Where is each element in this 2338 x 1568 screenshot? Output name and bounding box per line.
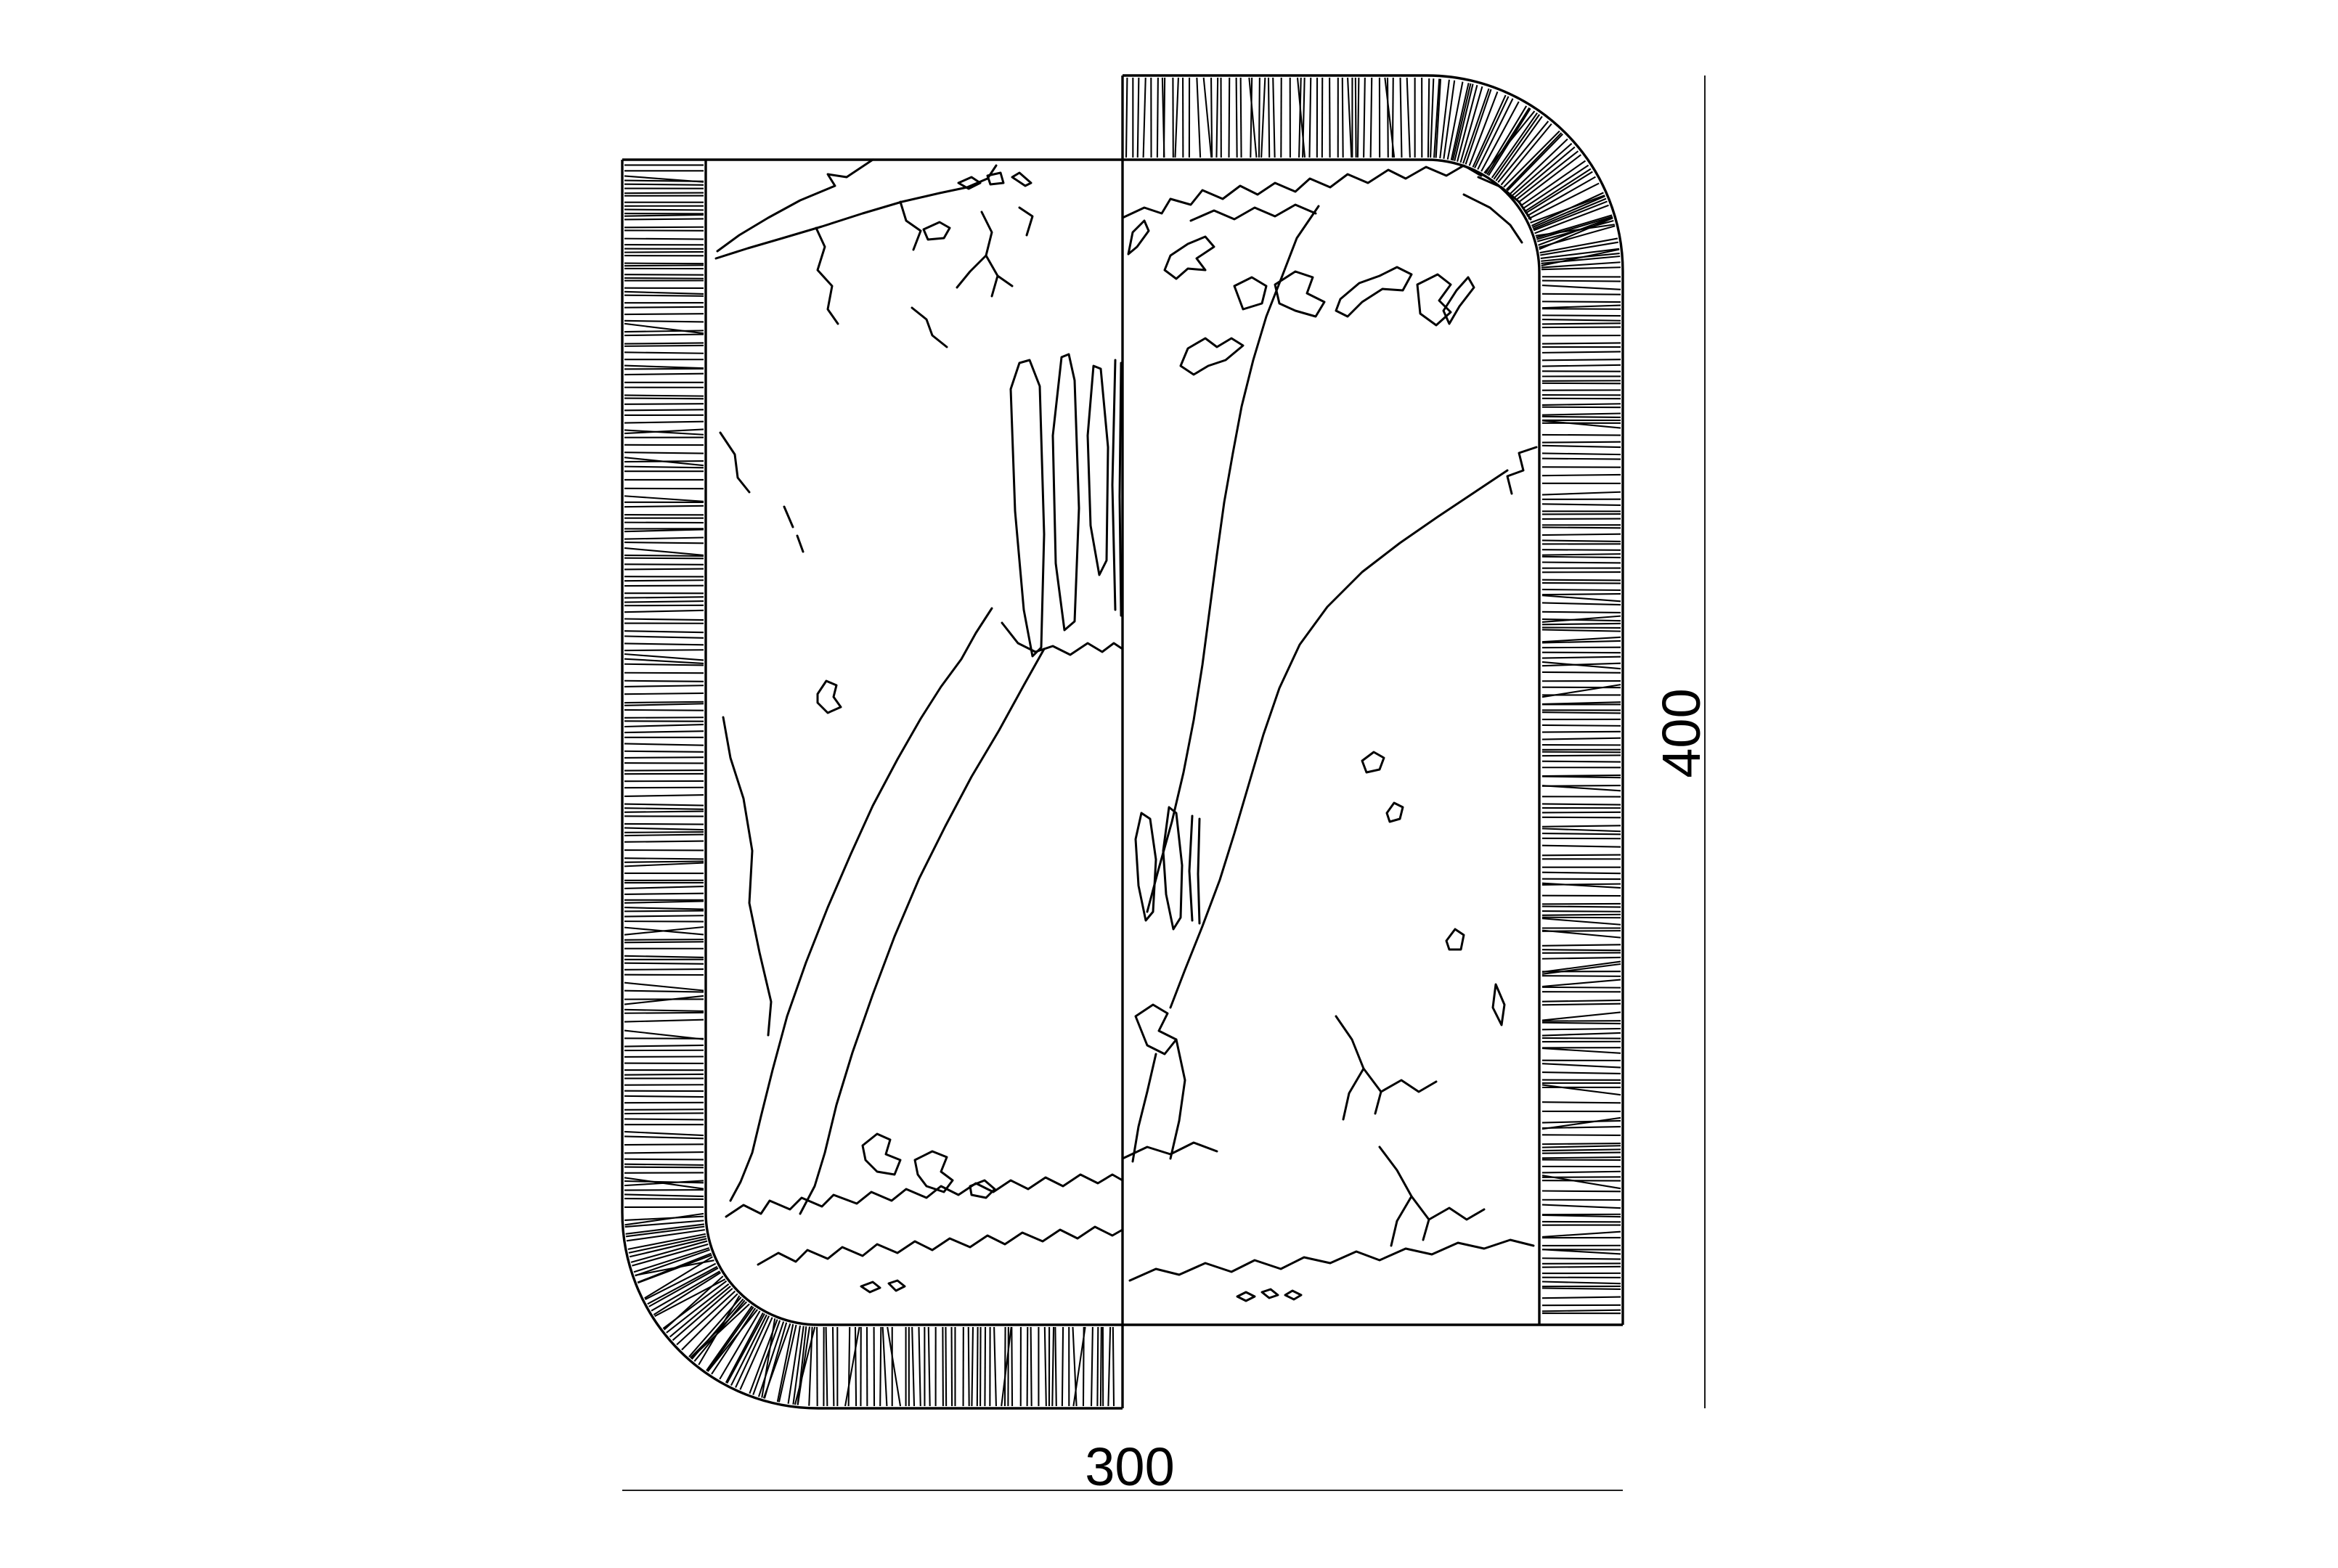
fringe-hatch-line	[1542, 453, 1621, 454]
fringe-hatch-line	[1542, 672, 1621, 673]
fringe-hatch-line	[1542, 442, 1621, 443]
trunk-vein	[800, 649, 1044, 1214]
fringe-hatch-line	[1542, 1121, 1621, 1123]
fringe-hatch-line	[624, 757, 704, 758]
fringe-hatch-line	[736, 1316, 769, 1388]
fringe-hatch-line	[1542, 761, 1621, 762]
fringe-hatch-line	[624, 314, 704, 314]
fringe-hatch-line	[1542, 323, 1621, 324]
marble-vein	[720, 433, 749, 492]
fringe-hatch-line	[1108, 1327, 1110, 1406]
fringe-hatch-line	[1542, 459, 1621, 460]
fringe-hatch-line	[624, 969, 704, 970]
fringe-hatch-line	[624, 808, 704, 809]
fringe-hatch-line	[1309, 78, 1311, 158]
fringe-hatch-line	[624, 915, 704, 916]
fringe-hatch-line	[1542, 1102, 1621, 1103]
fringe-hatch-line	[624, 907, 704, 910]
fringe-hatch-line	[1273, 78, 1274, 158]
fringe-hatch-line	[1542, 343, 1621, 343]
fringe-hatch-line	[624, 996, 704, 1005]
island-outline	[1336, 267, 1412, 317]
fringe-hatch-line	[624, 812, 704, 812]
fringe-hatch-line	[1542, 1310, 1621, 1312]
fringe-hatch-line	[624, 558, 704, 559]
coastline-vein	[758, 1227, 1123, 1265]
fringe-hatch-line	[1542, 1282, 1621, 1284]
fringe-hatch-line	[624, 804, 704, 806]
fringe-hatch-line	[624, 1109, 704, 1110]
fringe-hatch-line	[624, 395, 704, 396]
fringe-hatch-line	[1542, 987, 1621, 988]
marble-vein	[912, 308, 947, 347]
fringe-hatch-line	[624, 496, 704, 502]
fringe-hatch-line	[1542, 732, 1621, 732]
fringe-hatch-line	[624, 264, 704, 264]
fringe-hatch-line	[1055, 1327, 1056, 1406]
fringe-hatch-line	[1401, 78, 1402, 158]
fringe-hatch-line	[1542, 624, 1621, 624]
fringe-hatch-line	[624, 1020, 704, 1022]
marble-vein	[784, 507, 803, 552]
fringe-hatch-line	[624, 743, 704, 745]
fringe-hatch-line	[1542, 1029, 1621, 1029]
fringe-hatch-line	[972, 1327, 973, 1406]
fringe-hatch-line	[1542, 306, 1621, 309]
fringe-hatch-line	[1542, 1038, 1621, 1039]
icicle-sliver-outline	[1053, 354, 1079, 630]
left-panel-veins	[716, 160, 1123, 1292]
fringe-hatch-line	[624, 702, 704, 703]
fringe-hatch-line	[1443, 81, 1454, 159]
marble-vein	[1507, 447, 1536, 494]
marble-vein	[1133, 1040, 1185, 1161]
fringe-hatch-line	[1542, 583, 1621, 584]
fringe-hatch-line	[1091, 1327, 1093, 1406]
fringe-hatch-line	[1542, 1153, 1621, 1153]
rug-technical-drawing: 300 400	[0, 0, 2338, 1568]
fringe-hatch-line	[624, 181, 704, 181]
fringe-hatch-line	[1542, 964, 1621, 974]
island-outline	[1128, 221, 1266, 309]
fringe-hatch-line	[1542, 435, 1621, 436]
fringe-hatch-line	[1526, 172, 1593, 213]
fringe-hatch-line	[624, 1152, 704, 1153]
fringe-hatch-line	[1542, 1205, 1621, 1209]
fringe-hatch-line	[849, 1327, 850, 1406]
fringe-hatch-line	[624, 467, 704, 468]
fringe-hatch-line	[624, 710, 704, 711]
fringe-hatch-line	[624, 731, 704, 732]
fringe-hatch-line	[969, 1327, 969, 1406]
fringe-hatch-line	[1175, 78, 1178, 158]
fringe-hatch-line	[1083, 1327, 1084, 1406]
fringe-hatch-line	[624, 901, 704, 902]
fringe-hatch-line	[1259, 78, 1260, 158]
fringe-hatch-line	[624, 343, 704, 343]
fringe-hatch-line	[1542, 294, 1621, 295]
fringe-hatch-line	[1542, 1085, 1621, 1095]
fringe-hatch-line	[1542, 557, 1621, 558]
island-outline	[1443, 277, 1474, 324]
fringe-hatch-line	[624, 841, 704, 842]
fringe-hatch-line	[1542, 833, 1621, 834]
fringe-hatch-line	[624, 1132, 704, 1135]
fringe-hatch-line	[624, 619, 704, 621]
fringe-hatch-line	[1430, 78, 1433, 158]
width-dimension-label: 300	[1085, 1437, 1174, 1497]
island-outline	[924, 222, 950, 240]
fringe-hatch-line	[624, 569, 704, 570]
fringe-hatch-line	[624, 611, 704, 612]
fringe-hatch-line	[1542, 281, 1621, 282]
fringe-hatch-line	[624, 219, 704, 219]
fringe-hatch-line	[624, 681, 704, 682]
fringe-hatch-line	[624, 664, 704, 666]
fringe-hatch-line	[1440, 80, 1449, 158]
left-fringe-hatching	[624, 165, 1114, 1406]
fringe-hatch-line	[1542, 944, 1621, 946]
fringe-hatch-line	[624, 252, 704, 253]
fringe-hatch-line	[1542, 918, 1621, 925]
island-outline	[1136, 1005, 1176, 1054]
fringe-hatch-line	[624, 227, 704, 228]
fringe-hatch-line	[1542, 1172, 1621, 1173]
fringe-hatch-line	[1542, 603, 1621, 605]
fringe-hatch-line	[1542, 301, 1621, 302]
fringe-hatch-line	[624, 601, 704, 603]
island-outline	[1237, 1289, 1301, 1301]
fringe-hatch-line	[1343, 78, 1343, 158]
fringe-hatch-line	[1542, 653, 1621, 653]
marble-vein	[1019, 208, 1032, 235]
fringe-hatch-line	[624, 991, 704, 992]
fringe-hatch-line	[1241, 78, 1242, 158]
fringe-hatch-line	[1542, 540, 1621, 542]
fringe-hatch-line	[624, 307, 704, 308]
fringe-hatch-line	[1101, 1327, 1101, 1406]
fringe-hatch-line	[1542, 446, 1621, 447]
island-outline	[861, 1281, 905, 1292]
fringe-hatch-line	[1542, 417, 1621, 417]
fringe-hatch-line	[1542, 612, 1621, 613]
fringe-hatch-line	[1216, 78, 1218, 158]
fringe-hatch-line	[624, 1010, 704, 1011]
fringe-hatch-line	[1542, 365, 1621, 367]
fringe-hatch-line	[624, 278, 704, 279]
fringe-hatch-line	[624, 1113, 704, 1114]
fringe-hatch-line	[1542, 594, 1621, 595]
icicle-sliver-outline	[1136, 807, 1199, 929]
fringe-hatch-line	[1126, 78, 1127, 158]
fringe-hatch-line	[994, 1327, 996, 1406]
fringe-hatch-line	[1542, 804, 1621, 804]
fringe-hatch-line	[624, 215, 704, 216]
fringe-hatch-line	[1542, 648, 1621, 648]
fringe-hatch-line	[1542, 563, 1621, 563]
fringe-hatch-line	[1164, 78, 1165, 158]
marble-vein	[716, 166, 996, 258]
left-fringe-inner-edge-and-bottom-field-edge	[706, 160, 1623, 1325]
fringe-hatch-line	[1542, 534, 1621, 535]
fringe-hatch-line	[624, 1096, 704, 1097]
fringe-hatch-line	[624, 399, 704, 399]
fringe-hatch-line	[912, 1327, 914, 1406]
fringe-hatch-line	[1542, 351, 1621, 352]
fringe-hatch-line	[624, 1194, 704, 1196]
fringe-hatch-line	[1542, 1012, 1621, 1020]
fringe-hatch-line	[624, 506, 704, 507]
fringe-hatch-line	[1542, 918, 1621, 918]
coastline-vein	[1130, 1240, 1533, 1281]
fringe-hatch-line	[624, 693, 704, 694]
fringe-hatch-line	[624, 1164, 704, 1165]
fringe-hatch-line	[624, 956, 704, 957]
fringe-hatch-line	[624, 1119, 704, 1119]
fringe-hatch-line	[624, 1038, 704, 1039]
fringe-hatch-line	[1542, 1023, 1621, 1024]
fringe-hatch-line	[624, 963, 704, 964]
fringe-hatch-line	[624, 863, 704, 867]
fringe-hatch-line	[624, 643, 704, 645]
fringe-hatch-line	[624, 461, 704, 462]
fringe-hatch-line	[942, 1327, 943, 1406]
fringe-hatch-line	[624, 193, 704, 194]
fringe-hatch-line	[648, 1267, 717, 1304]
fringe-hatch-line	[1541, 267, 1621, 269]
drawing-canvas: 300 400	[0, 0, 2338, 1568]
fringe-hatch-line	[1542, 319, 1621, 321]
fringe-hatch-line	[1542, 1297, 1621, 1299]
fringe-hatch-line	[1542, 812, 1621, 813]
fringe-hatch-line	[1045, 1327, 1046, 1406]
fringe-hatch-line	[624, 862, 704, 862]
fringe-hatch-line	[624, 239, 704, 240]
fringe-hatch-line	[624, 858, 704, 859]
fringe-hatch-line	[855, 1327, 856, 1406]
fringe-hatch-line	[880, 1327, 881, 1406]
fringe-hatch-line	[1542, 712, 1621, 713]
fringe-hatch-line	[1542, 315, 1621, 316]
fringe-hatch-line	[1542, 554, 1621, 555]
width-dimension: 300	[622, 1437, 1623, 1497]
fringe-hatch-line	[624, 636, 704, 637]
fringe-hatch-line	[624, 832, 704, 833]
fringe-hatch-line	[1542, 1157, 1621, 1158]
fringe-hatch-line	[624, 828, 704, 830]
fringe-hatch-line	[1542, 580, 1621, 581]
marble-vein	[1336, 1016, 1436, 1119]
fringe-hatch-line	[624, 335, 704, 336]
trunk-vein	[1147, 206, 1319, 912]
fringe-hatch-line	[624, 894, 704, 894]
fringe-hatch-line	[624, 352, 704, 353]
fringe-hatch-line	[624, 366, 704, 369]
fringe-hatch-line	[1542, 907, 1621, 907]
fringe-hatch-line	[624, 1199, 704, 1199]
fringe-hatch-line	[1542, 309, 1621, 309]
fringe-hatch-line	[1542, 595, 1621, 601]
fringe-hatch-line	[1237, 78, 1237, 158]
fringe-hatch-line	[952, 1327, 953, 1406]
trunk-vein	[730, 608, 992, 1201]
fringe-hatch-line	[1542, 846, 1621, 847]
fringe-hatch-line	[826, 1327, 828, 1406]
fringe-hatch-line	[624, 422, 704, 423]
fringe-hatch-line	[624, 1159, 704, 1160]
fringe-hatch-line	[1542, 1258, 1621, 1259]
fringe-hatch-line	[624, 184, 704, 185]
fringe-hatch-line	[1542, 1143, 1621, 1144]
fringe-hatch-line	[624, 983, 704, 991]
fringe-hatch-line	[624, 939, 704, 940]
island-outline	[1181, 338, 1243, 375]
fringe-hatch-line	[1542, 911, 1621, 912]
fringe-hatch-line	[977, 1327, 978, 1406]
fringe-hatch-line	[1542, 629, 1621, 631]
fringe-hatch-line	[624, 1167, 704, 1168]
fringe-hatch-line	[1364, 78, 1365, 158]
fringe-hatch-line	[624, 1045, 704, 1047]
fringe-hatch-line	[1542, 414, 1621, 415]
fringe-hatch-line	[1542, 475, 1621, 475]
fringe-hatch-line	[624, 374, 704, 375]
icicle-sliver-outline	[1088, 366, 1108, 575]
fringe-hatch-line	[624, 1013, 704, 1013]
fringe-hatch-line	[1348, 78, 1351, 158]
fringe-hatch-line	[1542, 752, 1621, 753]
fringe-hatch-line	[624, 650, 704, 650]
height-dimension: 400	[1651, 75, 1711, 1408]
marble-vein	[723, 717, 771, 1035]
fringe-hatch-line	[1388, 78, 1388, 158]
fringe-hatch-line	[1542, 359, 1621, 360]
fringe-hatch-line	[985, 1327, 985, 1406]
fringe-hatch-line	[1197, 78, 1200, 158]
fringe-hatch-line	[883, 1327, 887, 1406]
fringe-hatch-line	[1356, 78, 1356, 158]
fringe-hatch-line	[1542, 527, 1621, 528]
fringe-hatch-line	[624, 942, 704, 942]
fringe-hatch-line	[624, 404, 704, 404]
marble-vein	[957, 212, 1012, 296]
fringe-hatch-line	[1542, 627, 1621, 628]
icicle-sliver-outline	[1011, 360, 1044, 656]
fringe-hatch-line	[1542, 407, 1621, 408]
fringe-hatch-line	[833, 1327, 834, 1406]
fringe-hatch-line	[1542, 725, 1621, 726]
fringe-hatch-line	[624, 292, 704, 294]
fringe-hatch-line	[1542, 383, 1621, 384]
fringe-hatch-line	[624, 685, 704, 687]
marble-vein	[1123, 1143, 1217, 1159]
fringe-hatch-line	[1542, 1149, 1621, 1151]
trunk-vein	[1170, 470, 1507, 1008]
fringe-hatch-line	[624, 824, 704, 825]
fringe-hatch-line	[624, 835, 704, 836]
island-outline	[818, 681, 841, 713]
fringe-hatch-line	[1407, 78, 1410, 158]
marble-vein	[816, 228, 838, 324]
fringe-hatch-line	[624, 751, 704, 752]
fringe-hatch-line	[1542, 828, 1621, 831]
fringe-hatch-line	[624, 210, 704, 211]
fringe-hatch-line	[1542, 755, 1621, 756]
fringe-hatch-line	[1542, 1000, 1621, 1002]
fringe-hatch-line	[945, 1327, 946, 1406]
fringe-hatch-line	[918, 1327, 920, 1406]
marble-vein	[1002, 623, 1123, 655]
fringe-hatch-line	[1542, 980, 1621, 987]
fringe-hatch-line	[809, 1327, 812, 1406]
fringe-hatch-line	[1542, 657, 1621, 658]
fringe-hatch-line	[1542, 420, 1621, 428]
fringe-hatch-line	[1542, 1215, 1621, 1217]
fringe-hatch-line	[1542, 855, 1621, 856]
rug-outlines	[622, 75, 1623, 1408]
fringe-hatch-line	[1157, 78, 1158, 158]
fringe-hatch-line	[624, 321, 704, 322]
fringe-hatch-line	[1542, 825, 1621, 826]
fringe-hatch-line	[1542, 404, 1621, 405]
fringe-hatch-line	[624, 409, 704, 410]
fringe-hatch-line	[624, 597, 704, 597]
fringe-hatch-line	[624, 724, 704, 727]
fringe-hatch-line	[1542, 492, 1621, 495]
fringe-hatch-line	[624, 542, 704, 543]
fringe-hatch-line	[624, 1136, 704, 1138]
fringe-hatch-line	[1144, 78, 1146, 158]
fringe-hatch-line	[817, 1327, 818, 1406]
fringe-hatch-line	[1371, 78, 1372, 158]
fringe-hatch-line	[1542, 550, 1621, 550]
fringe-hatch-line	[624, 265, 704, 266]
fringe-hatch-line	[1542, 1063, 1621, 1067]
fringe-hatch-line	[1542, 285, 1621, 290]
fringe-hatch-line	[1005, 1327, 1006, 1406]
fringe-hatch-line	[1542, 1135, 1621, 1135]
fringe-hatch-line	[1031, 1327, 1032, 1406]
coastline-vein	[726, 1175, 1123, 1217]
coastline-vein	[1191, 205, 1316, 221]
fringe-hatch-line	[1542, 962, 1621, 972]
marble-vein	[1112, 360, 1121, 616]
fringe-hatch-line	[1062, 1327, 1063, 1406]
fringe-hatch-line	[1542, 873, 1621, 874]
fringe-hatch-line	[1542, 1146, 1621, 1147]
island-outline	[863, 1134, 995, 1198]
fringe-hatch-line	[624, 452, 704, 453]
fringe-hatch-line	[929, 1327, 930, 1406]
fringe-hatch-line	[1542, 1267, 1621, 1267]
fringe-hatch-line	[845, 1327, 860, 1406]
fringe-hatch-line	[1011, 1327, 1012, 1406]
fringe-hatch-line	[1204, 78, 1212, 158]
fringe-hatch-line	[624, 1074, 704, 1075]
fringe-hatch-line	[1542, 1004, 1621, 1005]
fringe-hatch-line	[624, 703, 704, 706]
fringe-hatch-line	[624, 529, 704, 531]
fringe-hatch-line	[1138, 78, 1139, 158]
fringe-hatch-line	[1542, 1033, 1621, 1036]
fringe-hatch-line	[1211, 78, 1212, 158]
fringe-hatch-line	[1542, 950, 1621, 950]
right-panel-veins	[1123, 166, 1536, 1301]
fringe-hatch-line	[624, 631, 704, 632]
fringe-hatch-line	[1542, 1289, 1621, 1289]
fringe-hatch-line	[1542, 1072, 1621, 1074]
fringe-hatch-line	[1542, 1048, 1621, 1053]
